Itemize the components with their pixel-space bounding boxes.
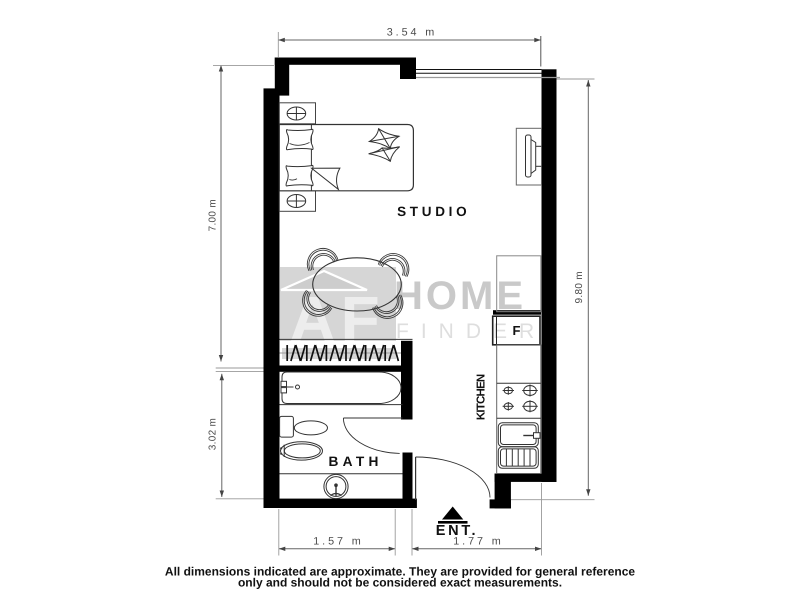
svg-text:F: F	[513, 323, 521, 338]
svg-text:BATH: BATH	[328, 454, 382, 469]
svg-text:7.00 m: 7.00 m	[207, 199, 218, 231]
svg-text:9.80 m: 9.80 m	[574, 271, 585, 303]
svg-text:3.54 m: 3.54 m	[387, 27, 437, 39]
svg-text:FINDER: FINDER	[396, 320, 546, 343]
svg-text:3.02 m: 3.02 m	[208, 418, 219, 450]
svg-text:only and should not be conside: only and should not be considered exact …	[238, 576, 562, 590]
svg-text:STUDIO: STUDIO	[397, 204, 470, 219]
svg-text:1.57 m: 1.57 m	[313, 535, 363, 547]
svg-text:1.77 m: 1.77 m	[453, 535, 503, 547]
svg-text:KITCHEN: KITCHEN	[475, 374, 487, 420]
